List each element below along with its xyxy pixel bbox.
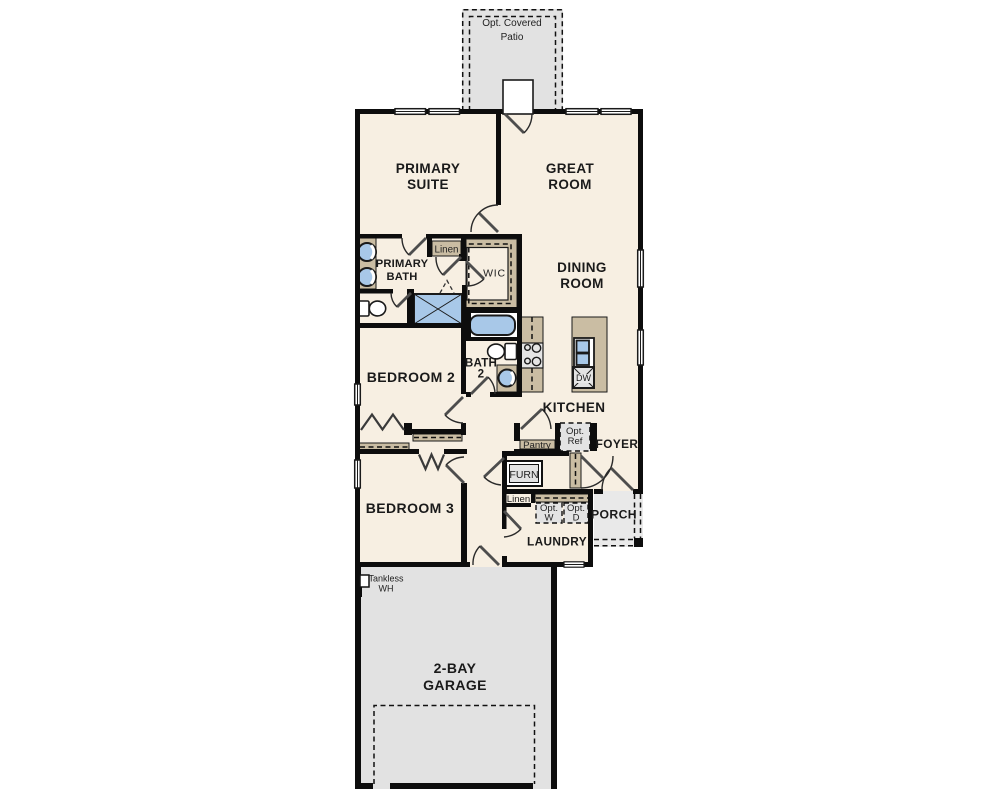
svg-text:Linen: Linen xyxy=(507,494,530,505)
svg-text:ROOM: ROOM xyxy=(560,276,604,291)
svg-text:PRIMARY: PRIMARY xyxy=(396,161,461,176)
svg-text:KITCHEN: KITCHEN xyxy=(543,400,606,415)
svg-text:Linen: Linen xyxy=(435,245,459,256)
svg-text:ROOM: ROOM xyxy=(548,177,592,192)
svg-text:FOYER: FOYER xyxy=(596,437,639,451)
svg-text:BATH: BATH xyxy=(386,271,417,283)
svg-text:DINING: DINING xyxy=(557,260,607,275)
svg-text:BEDROOM 2: BEDROOM 2 xyxy=(367,369,455,385)
svg-text:PRIMARY: PRIMARY xyxy=(376,258,429,270)
svg-text:BEDROOM 3: BEDROOM 3 xyxy=(366,500,454,516)
svg-text:WIC: WIC xyxy=(483,268,506,280)
svg-text:Opt. Covered: Opt. Covered xyxy=(482,18,541,29)
svg-text:DW: DW xyxy=(576,373,591,383)
svg-text:FURN: FURN xyxy=(509,469,538,481)
svg-text:GARAGE: GARAGE xyxy=(423,677,487,693)
svg-text:2-BAY: 2-BAY xyxy=(434,660,477,676)
svg-text:SUITE: SUITE xyxy=(407,177,449,192)
svg-text:PORCH: PORCH xyxy=(591,508,637,522)
svg-text:D: D xyxy=(573,513,580,524)
svg-text:LAUNDRY: LAUNDRY xyxy=(527,535,587,549)
svg-text:Pantry: Pantry xyxy=(523,440,551,451)
svg-text:Ref: Ref xyxy=(568,436,583,447)
svg-text:W: W xyxy=(545,513,554,524)
svg-text:Patio: Patio xyxy=(501,32,524,43)
svg-text:2: 2 xyxy=(478,368,485,381)
svg-text:WH: WH xyxy=(379,584,394,594)
svg-text:Tankless: Tankless xyxy=(368,574,404,584)
svg-text:GREAT: GREAT xyxy=(546,161,595,176)
